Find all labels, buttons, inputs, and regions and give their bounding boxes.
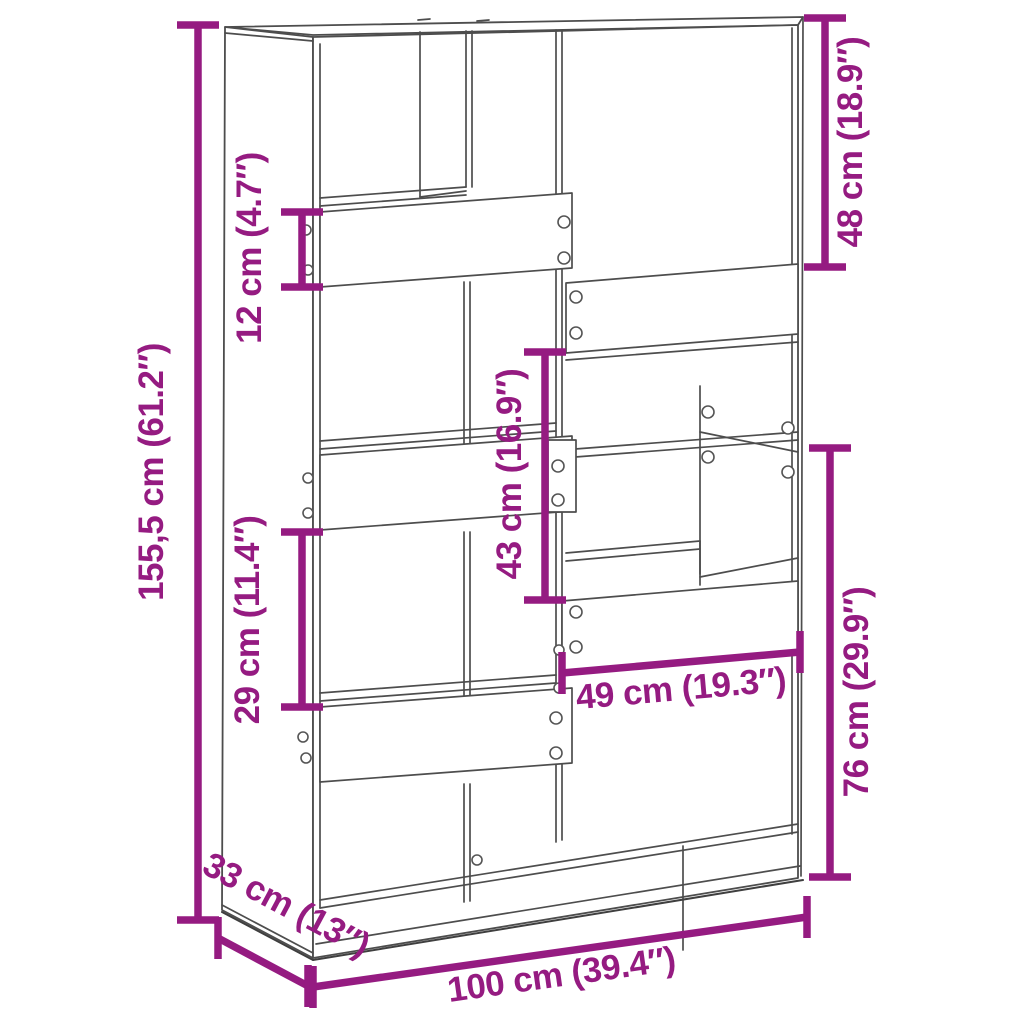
dimension-label-top-right-compartment: 48 cm (18.9″): [831, 37, 870, 248]
dimension-label-left-compartment: 29 cm (11.4″): [228, 516, 267, 725]
back-right-edge: [801, 17, 803, 876]
dimension-label-height: 155,5 cm (61.2″): [132, 343, 171, 601]
bookcase-dimension-diagram: 155,5 cm (61.2″) 12 cm (4.7″) 29 cm (11.…: [0, 0, 1024, 1024]
dimension-label-center-compartment: 43 cm (16.9″): [490, 369, 529, 580]
dimension-label-top-left-shelf: 12 cm (4.7″): [230, 152, 269, 344]
divider-top-marks: [418, 19, 489, 21]
product-dimension-page: 155,5 cm (61.2″) 12 cm (4.7″) 29 cm (11.…: [0, 0, 1024, 1024]
dimension-line-height: [177, 25, 219, 920]
dimension-label-bottom-right-section: 76 cm (29.9″): [837, 587, 876, 798]
